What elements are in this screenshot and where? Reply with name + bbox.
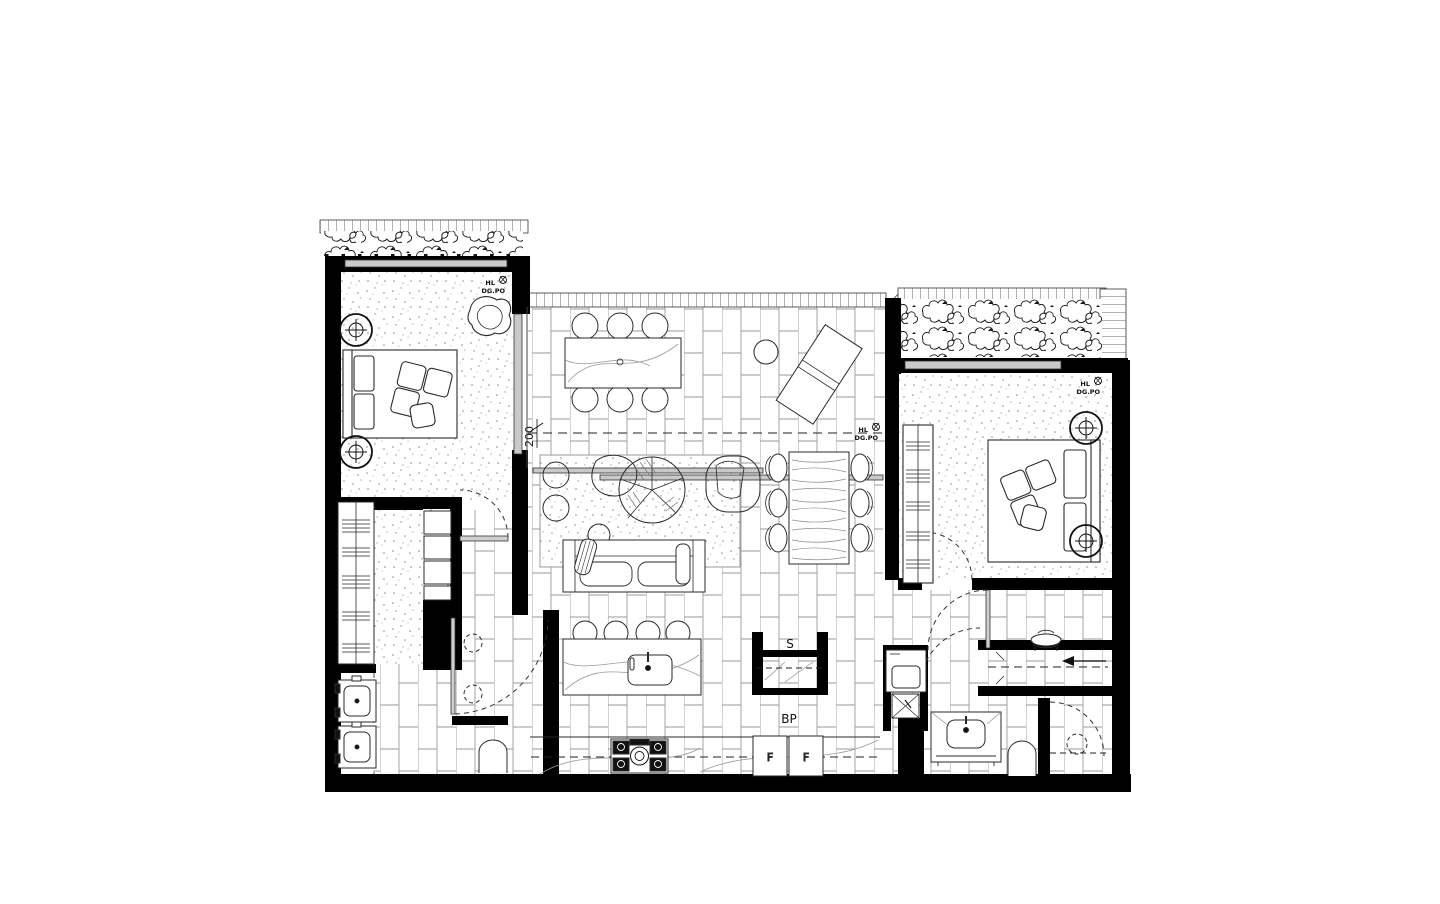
toilet [1008, 741, 1036, 776]
bed1-hall-floor [455, 510, 513, 612]
bed1-headboard [343, 350, 352, 438]
dgpo-label: DG.PO [855, 434, 879, 442]
robe2 [903, 425, 933, 583]
wall-robe-corner [423, 600, 462, 670]
cooktop [611, 739, 668, 773]
island-sink [628, 652, 672, 685]
wall-powder-sill [452, 716, 508, 725]
fridge-label: F [767, 751, 773, 764]
sofa-roll-cushion [676, 544, 690, 584]
door-leaf-entry [986, 590, 990, 648]
shower-screen-wall [1038, 698, 1050, 776]
shrub-hedge [890, 299, 1102, 357]
wall-right [1112, 360, 1130, 776]
bed2-pillow [1064, 503, 1086, 551]
shelf-nook [424, 511, 451, 600]
window-bed2 [905, 361, 1061, 369]
wall-powder-right [543, 610, 559, 776]
slider-bed1-terrace [514, 314, 522, 454]
appliance-unit [335, 722, 376, 768]
bed1-pillow [354, 356, 374, 391]
sofa [563, 537, 705, 592]
window-bed1 [345, 260, 507, 267]
shrub-hedge [321, 231, 523, 256]
hl-label: HL [858, 426, 868, 434]
paver-border [528, 293, 886, 307]
paver-border-side [1100, 289, 1126, 361]
floor-plan-drawing: F F S BP [0, 0, 1440, 904]
toilet [479, 740, 507, 773]
bed2-cushion [1019, 504, 1047, 532]
wall-bed1-right-lower [512, 450, 528, 615]
wall-entry-bottom [978, 686, 1114, 696]
bed1-cushion [409, 402, 436, 429]
bed1-pillow [354, 394, 374, 429]
hl-label: HL [485, 279, 495, 287]
wc-toilet [892, 694, 919, 718]
dining-area [766, 452, 873, 564]
side-table [754, 340, 778, 364]
freezer-label: F [803, 751, 809, 764]
wall-bottom [325, 774, 1131, 792]
bedroom2 [903, 425, 1100, 583]
planter-top-left [320, 220, 528, 256]
vanity [931, 712, 1001, 766]
balcony-appliances [335, 676, 376, 768]
storage-label: S [786, 637, 794, 651]
appliance-unit [335, 676, 376, 722]
wall-bed1-right-upper [512, 256, 530, 314]
wall-bath-pier [898, 718, 924, 776]
dgpo-label: DG.PO [482, 287, 506, 295]
washing-machine [886, 650, 926, 692]
dim-200-label: 200 [523, 426, 536, 447]
bed1-chair [468, 297, 511, 336]
bed2-pillow [1064, 450, 1086, 498]
hl-label: HL [1080, 380, 1090, 388]
planter-top-right [890, 288, 1126, 361]
door-leaf-bed1 [460, 536, 508, 541]
floor-plan-canvas: F F S BP [0, 0, 1440, 904]
wall-bed2-left [885, 372, 899, 580]
dgpo-label: DG.PO [1077, 388, 1101, 396]
wall-shelf-side [450, 497, 462, 607]
wall-robe-stub [338, 664, 376, 673]
bp-label: BP [781, 712, 796, 726]
door-leaf-powder [451, 618, 455, 714]
